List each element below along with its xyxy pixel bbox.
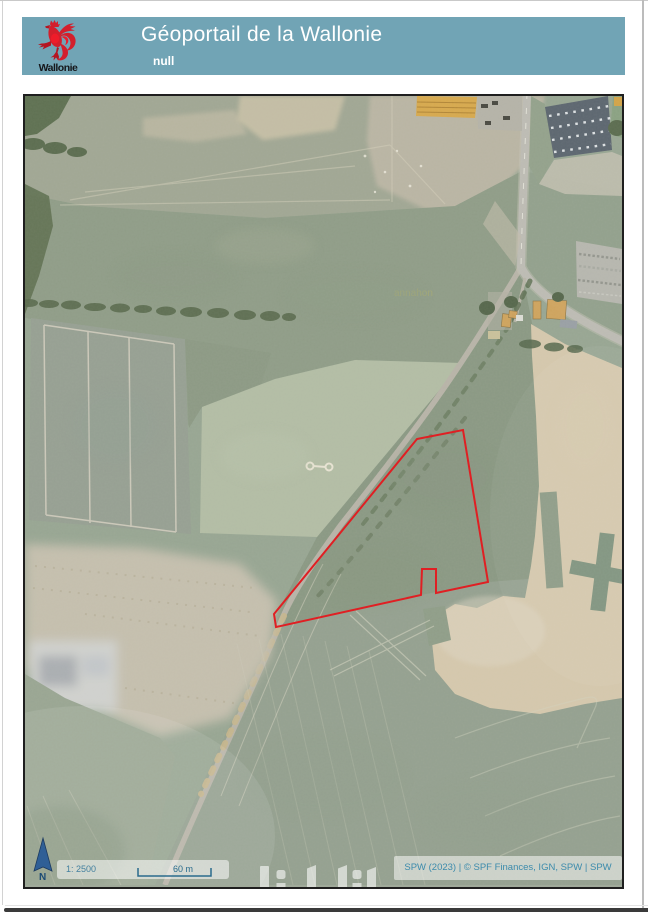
svg-text:N: N [39,872,46,883]
svg-text:60 m: 60 m [173,864,193,874]
